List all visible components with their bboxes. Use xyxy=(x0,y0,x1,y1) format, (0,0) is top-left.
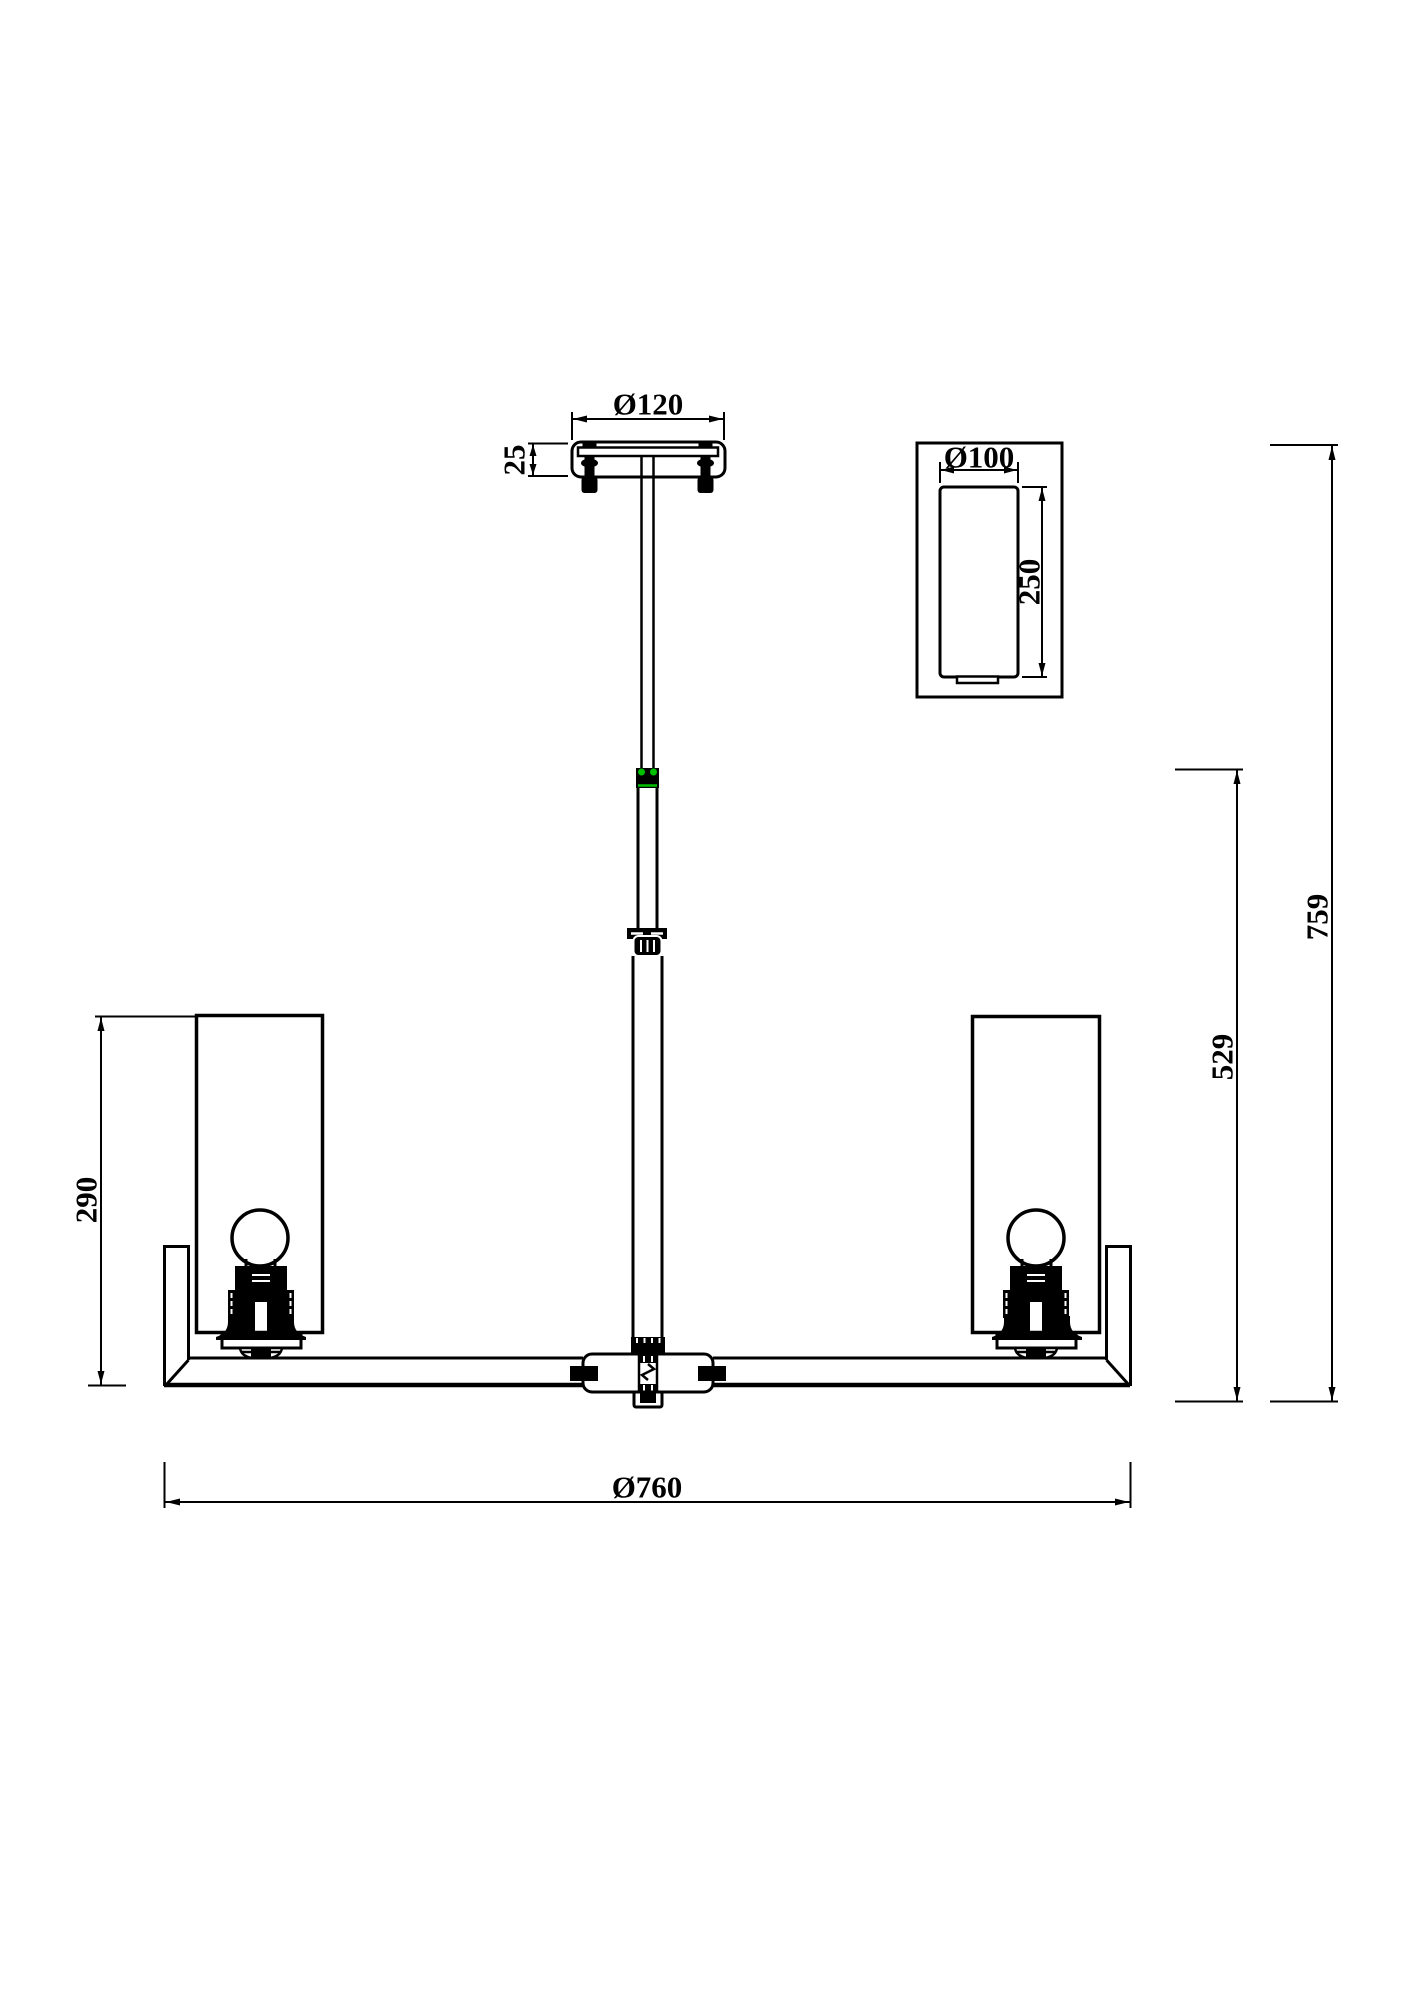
hub-nut xyxy=(631,1337,665,1355)
detail-shade xyxy=(940,487,1018,677)
left-upturn xyxy=(163,1245,190,1386)
dim-label-shade-height: 290 xyxy=(69,1177,104,1224)
arrowhead xyxy=(1329,1387,1336,1401)
arrowhead xyxy=(1039,488,1046,501)
dim-label-canopy-height: 25 xyxy=(497,445,532,476)
arrowhead xyxy=(1329,446,1336,460)
arrowhead xyxy=(573,416,587,423)
arrowhead xyxy=(1234,1387,1241,1401)
arrowhead xyxy=(98,1018,105,1032)
right-arm-screw xyxy=(698,1366,726,1381)
dim-label-overall-height: 759 xyxy=(1300,894,1335,941)
dim-canopy-diameter: Ø120 xyxy=(572,387,724,441)
left-socket-slot xyxy=(255,1302,267,1334)
right-socket-cap xyxy=(1010,1266,1062,1292)
dim-overall-height: 759 xyxy=(1270,445,1338,1402)
dim-label-detail-diameter: Ø100 xyxy=(944,440,1015,475)
bolt-nut xyxy=(582,477,598,493)
chandelier-dimension-drawing: Ø100 250 Ø120 25 290 xyxy=(0,0,1413,2000)
right-lamp xyxy=(973,1017,1100,1360)
left-bulb xyxy=(232,1210,288,1266)
stem-joint-upper xyxy=(636,768,659,788)
mounting-plate xyxy=(578,448,718,457)
technical-drawing-canvas: Ø100 250 Ø120 25 290 xyxy=(0,0,1413,2000)
right-upturn xyxy=(1105,1245,1132,1386)
arrowhead xyxy=(1115,1499,1129,1506)
dim-label-stem-drop: 529 xyxy=(1205,1034,1240,1081)
right-bulb xyxy=(1008,1210,1064,1266)
green-indicator-dot xyxy=(650,769,657,776)
bolt-flange xyxy=(697,459,714,468)
arrowhead xyxy=(1039,663,1046,676)
left-upturn-bevel xyxy=(166,1360,189,1385)
bolt-nut xyxy=(698,477,714,493)
dim-label-detail-height: 250 xyxy=(1012,559,1047,606)
dim-label-fixture-diameter: Ø760 xyxy=(612,1470,683,1505)
left-arm-screw xyxy=(570,1366,598,1381)
dim-detail-shade-diameter: Ø100 xyxy=(940,440,1018,484)
right-stem-connector xyxy=(1026,1348,1046,1359)
arrowhead xyxy=(98,1371,105,1384)
dim-fixture-diameter: Ø760 xyxy=(165,1462,1131,1508)
canopy-assembly xyxy=(572,442,725,493)
arrowhead xyxy=(1234,771,1241,785)
left-lamp xyxy=(197,1016,323,1360)
dim-stem-drop: 529 xyxy=(1175,770,1243,1402)
dim-canopy-height: 25 xyxy=(497,444,569,477)
bolt-head xyxy=(699,443,713,449)
green-indicator-dot xyxy=(638,769,645,776)
detail-view: Ø100 250 xyxy=(917,440,1062,698)
dim-shade-height: 290 xyxy=(69,1017,197,1386)
right-socket-slot xyxy=(1030,1302,1042,1334)
stem-coupler xyxy=(627,928,667,956)
dim-label-canopy-diameter: Ø120 xyxy=(613,387,684,422)
bottom-bracket-screw xyxy=(640,1393,656,1403)
left-stem-connector xyxy=(251,1348,271,1359)
bolt-head xyxy=(583,443,597,449)
hub-channel-top-band xyxy=(639,1355,657,1363)
center-hub xyxy=(570,1354,726,1407)
left-socket-cap xyxy=(235,1266,287,1292)
bolt-flange xyxy=(581,459,598,468)
right-upturn-bevel xyxy=(1107,1360,1130,1385)
stem-assembly xyxy=(627,457,667,1355)
detail-shade-base-tab xyxy=(957,677,998,684)
arrowhead xyxy=(709,416,723,423)
arrowhead xyxy=(166,1499,180,1506)
